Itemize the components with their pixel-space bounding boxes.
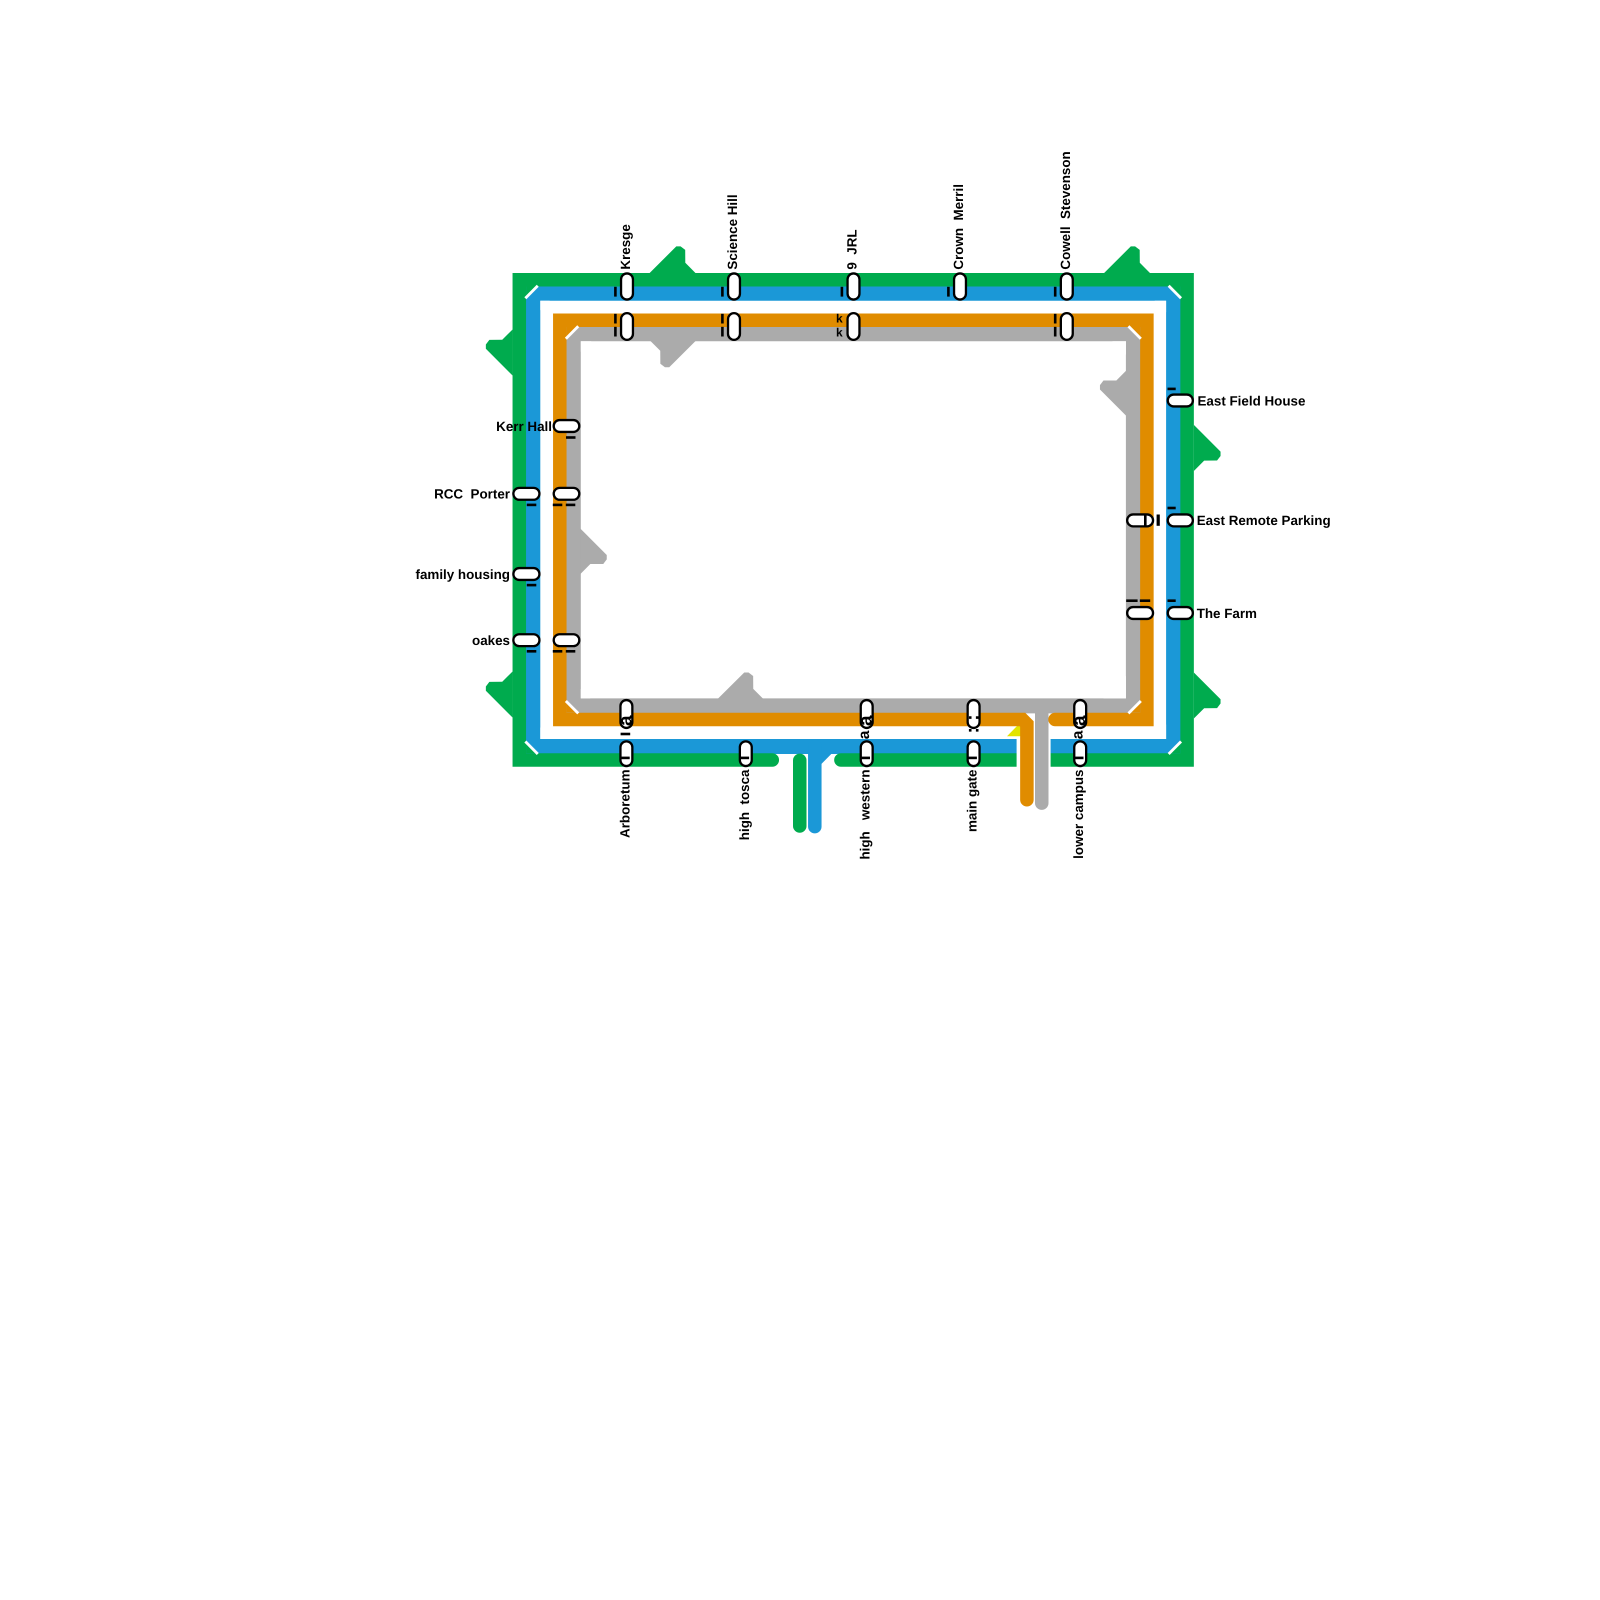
svg-text:high western: high western bbox=[858, 770, 873, 860]
svg-text:Kerr Hall: Kerr Hall bbox=[496, 419, 552, 434]
svg-text:a: a bbox=[615, 715, 636, 726]
svg-text:oakes: oakes bbox=[472, 633, 510, 648]
svg-text:a: a bbox=[856, 715, 877, 726]
svg-text:k: k bbox=[836, 312, 843, 326]
svg-text:Kresge: Kresge bbox=[618, 224, 633, 269]
svg-text:Arboretum: Arboretum bbox=[617, 769, 632, 838]
svg-text:high tosca: high tosca bbox=[737, 769, 752, 840]
svg-text:k: k bbox=[836, 326, 843, 340]
svg-text:RCC Porter: RCC Porter bbox=[434, 487, 511, 502]
svg-text:family housing: family housing bbox=[416, 567, 511, 582]
svg-text:a: a bbox=[856, 730, 873, 739]
svg-text:East Remote Parking: East Remote Parking bbox=[1197, 513, 1331, 528]
svg-text:lower campus: lower campus bbox=[1071, 770, 1086, 859]
svg-text::: : bbox=[963, 714, 984, 720]
svg-text:The Farm: The Farm bbox=[1197, 606, 1257, 621]
svg-text:a: a bbox=[1069, 715, 1090, 726]
svg-text:Science Hill: Science Hill bbox=[725, 194, 740, 269]
svg-text:Cowell Stevenson: Cowell Stevenson bbox=[1058, 151, 1073, 269]
svg-text:9 JRL: 9 JRL bbox=[845, 229, 860, 269]
svg-text:main gate: main gate bbox=[965, 770, 980, 833]
svg-text:a: a bbox=[1070, 730, 1087, 739]
svg-text::: : bbox=[963, 727, 984, 733]
svg-text:Crown Merril: Crown Merril bbox=[951, 184, 966, 270]
svg-text:East Field House: East Field House bbox=[1198, 393, 1306, 408]
